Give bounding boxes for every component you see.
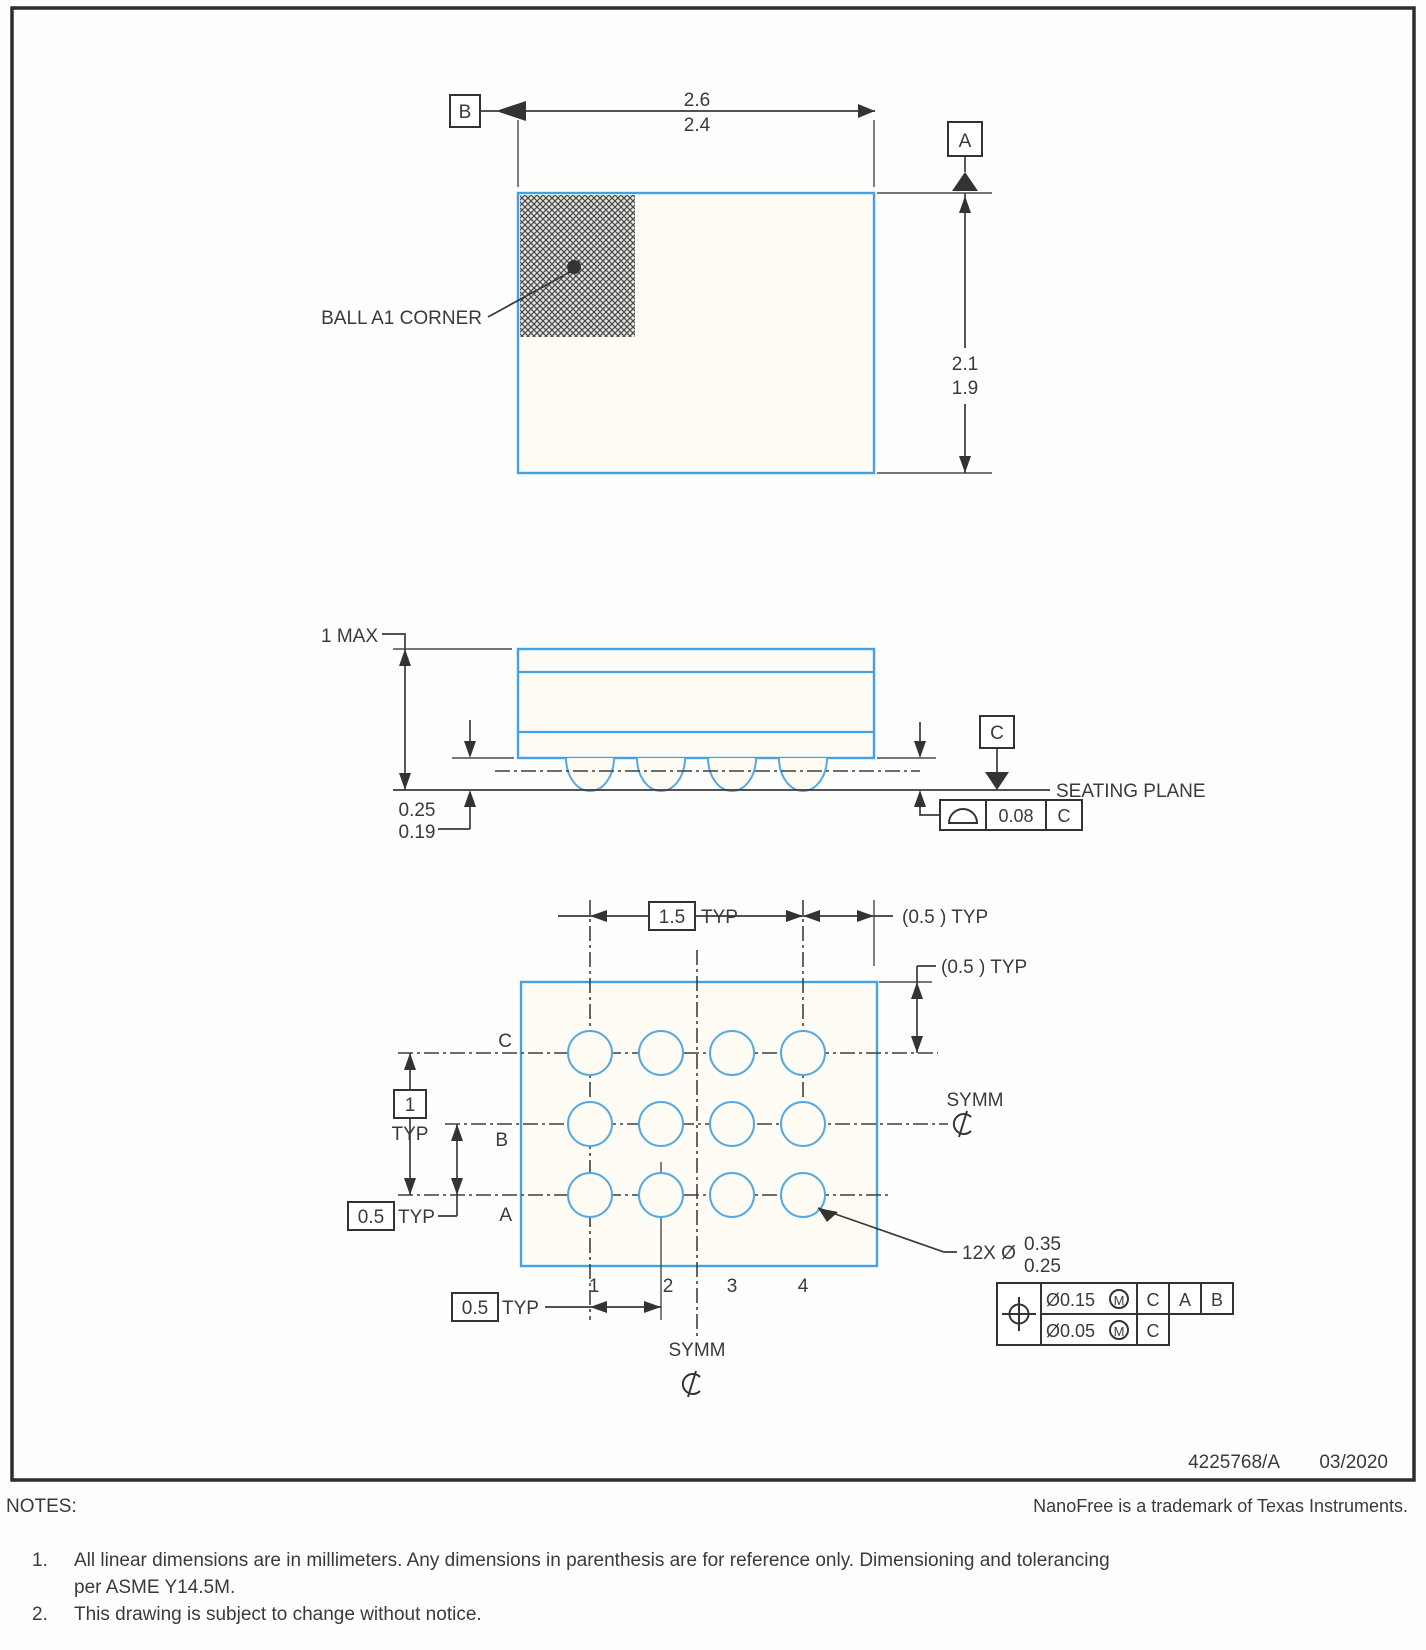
position-datum-1: C bbox=[1147, 1290, 1160, 1310]
row-label-a: A bbox=[499, 1205, 512, 1226]
drawing-canvas: BALL A1 CORNER B 2.6 2.4 A 2.1 1.9 bbox=[0, 0, 1426, 1650]
row-edge-ref-label: (0.5 ) TYP bbox=[941, 957, 1027, 978]
position-tol-2: Ø0.05 bbox=[1046, 1321, 1095, 1341]
row-span-typ: TYP bbox=[392, 1124, 429, 1145]
row-span-value: 1 bbox=[405, 1095, 416, 1116]
document-number: 4225768/A bbox=[1188, 1452, 1280, 1473]
note-1-number: 1. bbox=[32, 1550, 48, 1571]
seating-plane-label: SEATING PLANE bbox=[1056, 781, 1206, 802]
centerline-symbol-icon bbox=[683, 1371, 700, 1397]
col-pitch-typ: TYP bbox=[502, 1298, 539, 1319]
datum-c-label: C bbox=[990, 723, 1004, 744]
symm-label-bottom: SYMM bbox=[669, 1340, 726, 1361]
side-ball-4 bbox=[779, 758, 827, 791]
package-drawing-page: BALL A1 CORNER B 2.6 2.4 A 2.1 1.9 bbox=[0, 0, 1426, 1650]
col-label-2: 2 bbox=[663, 1276, 674, 1297]
col-pitch-ref-label: (0.5 ) TYP bbox=[902, 907, 988, 928]
revision-date: 03/2020 bbox=[1319, 1452, 1388, 1473]
height-min: 1.9 bbox=[952, 378, 978, 399]
width-max: 2.6 bbox=[684, 90, 710, 111]
ball-count-callout: 12X Ø bbox=[962, 1243, 1016, 1264]
position-datum-4: C bbox=[1147, 1321, 1160, 1341]
side-ball-1 bbox=[566, 758, 614, 791]
ball-a1-corner-label: BALL A1 CORNER bbox=[321, 308, 482, 329]
note-1-line-1: All linear dimensions are in millimeters… bbox=[74, 1550, 1110, 1571]
side-view: SEATING PLANE 1 MAX 0.25 0.19 C bbox=[321, 626, 1206, 843]
height-dim-arrow-down-icon bbox=[959, 456, 971, 473]
mmc-modifier-2: M bbox=[1114, 1324, 1125, 1339]
width-dim-arrow-icon bbox=[858, 104, 875, 118]
row-pitch-typ: TYP bbox=[398, 1207, 435, 1228]
note-1-line-2: per ASME Y14.5M. bbox=[74, 1577, 235, 1598]
pitch-span-typ: TYP bbox=[701, 907, 738, 928]
symm-label-right: SYMM bbox=[947, 1090, 1004, 1111]
note-2-number: 2. bbox=[32, 1604, 48, 1625]
ball-height-max: 0.25 bbox=[399, 800, 436, 821]
col-pitch-value: 0.5 bbox=[462, 1298, 488, 1319]
col-label-3: 3 bbox=[727, 1276, 738, 1297]
row-pitch-value: 0.5 bbox=[358, 1207, 384, 1228]
centerline-symbol-icon bbox=[954, 1111, 971, 1137]
title-block: 4225768/A 03/2020 bbox=[1188, 1452, 1388, 1473]
datum-a-triangle-icon bbox=[952, 172, 978, 191]
trademark-note: NanoFree is a trademark of Texas Instrum… bbox=[1033, 1496, 1408, 1516]
height-max: 2.1 bbox=[952, 354, 978, 375]
mmc-modifier-1: M bbox=[1114, 1293, 1125, 1308]
notes-section: NOTES: NanoFree is a trademark of Texas … bbox=[6, 1496, 1408, 1625]
width-min: 2.4 bbox=[684, 115, 711, 136]
col-label-1: 1 bbox=[589, 1276, 600, 1297]
bottom-view: C B A 1 2 3 4 1.5 TYP (0.5 ) TYP (0.5 ) … bbox=[348, 900, 1233, 1397]
flatness-fcf: 0.08 C bbox=[940, 800, 1082, 830]
datum-c-triangle-icon bbox=[985, 772, 1009, 790]
top-view: BALL A1 CORNER B 2.6 2.4 A 2.1 1.9 bbox=[321, 90, 992, 473]
datum-b-arrow-icon bbox=[496, 101, 526, 121]
ball-height-min: 0.19 bbox=[399, 822, 436, 843]
datum-a-label: A bbox=[959, 131, 972, 152]
height-dim-arrow-up-icon bbox=[959, 196, 971, 213]
side-ball-3 bbox=[708, 758, 756, 791]
max-height-label: 1 MAX bbox=[321, 626, 378, 647]
note-2-text: This drawing is subject to change withou… bbox=[74, 1604, 482, 1625]
flatness-tolerance: 0.08 bbox=[998, 806, 1033, 826]
notes-title: NOTES: bbox=[6, 1496, 77, 1517]
position-datum-2: A bbox=[1179, 1290, 1191, 1310]
row-label-b: B bbox=[495, 1130, 508, 1151]
row-label-c: C bbox=[498, 1031, 512, 1052]
position-datum-3: B bbox=[1211, 1290, 1223, 1310]
ball-dia-min: 0.25 bbox=[1024, 1256, 1061, 1277]
position-tol-1: Ø0.15 bbox=[1046, 1290, 1095, 1310]
side-view-package-outline bbox=[518, 649, 874, 758]
position-fcf: Ø0.15 M C A B Ø0.05 M C bbox=[997, 1283, 1233, 1345]
col-label-4: 4 bbox=[798, 1276, 809, 1297]
datum-b-label: B bbox=[459, 102, 472, 123]
side-ball-2 bbox=[637, 758, 685, 791]
ball-dia-max: 0.35 bbox=[1024, 1234, 1061, 1255]
pitch-span-value: 1.5 bbox=[659, 907, 685, 928]
flatness-datum-ref: C bbox=[1058, 806, 1071, 826]
